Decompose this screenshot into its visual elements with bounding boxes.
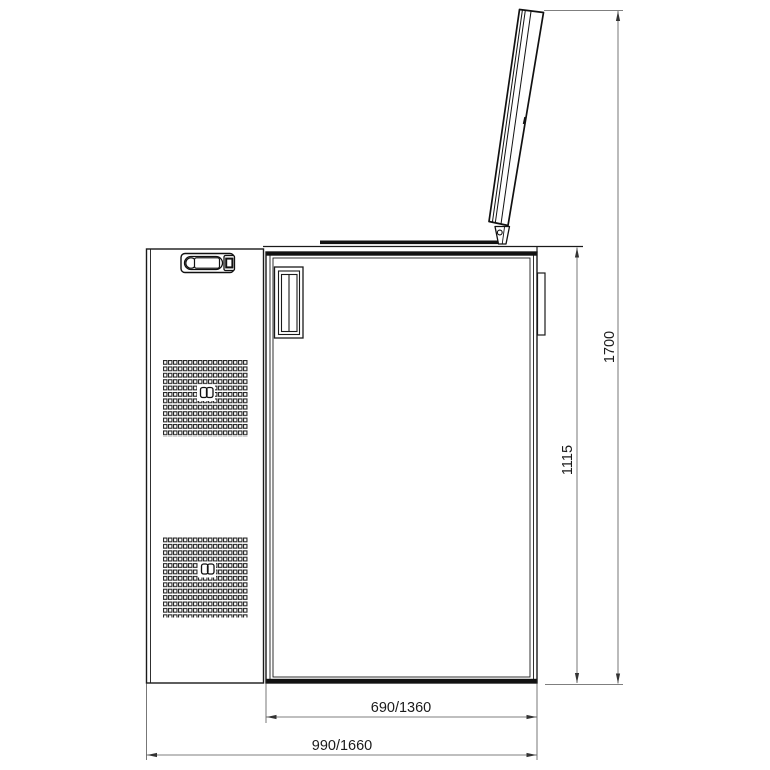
dim-label-overall-height: 1700 <box>602 331 618 363</box>
slider-knob <box>195 258 220 268</box>
door <box>266 252 545 683</box>
arrow-right-icon <box>527 715 537 719</box>
dim-label-door-width: 690/1360 <box>371 700 431 716</box>
arrow-down-icon <box>575 673 579 683</box>
drawing-page: 690/1360 990/1660 1115 1700 <box>0 0 770 770</box>
arrow-down-icon <box>616 674 620 684</box>
open-lid <box>489 10 544 226</box>
door-top-seal-band <box>267 252 537 255</box>
dim-label-overall-width: 990/1660 <box>312 738 372 754</box>
lid-opening-gasket <box>320 241 502 245</box>
door-hinge-plate <box>538 273 546 335</box>
arrow-left-icon <box>147 753 157 757</box>
left-panel <box>147 249 264 683</box>
left-panel-outline <box>147 249 264 683</box>
appliance-technical-drawing: 690/1360 990/1660 1115 1700 <box>0 0 770 770</box>
arrow-up-icon <box>616 11 620 21</box>
arrow-left-icon <box>267 715 277 719</box>
control-panel <box>181 254 235 273</box>
ventilation-grid-top <box>163 360 248 437</box>
cabinet-top <box>263 241 583 253</box>
door-bottom-seal-band <box>267 679 537 683</box>
door-handle <box>275 267 304 338</box>
door-outline <box>266 252 537 683</box>
arrow-right-icon <box>527 753 537 757</box>
ventilation-grid-bottom <box>163 538 248 618</box>
dim-label-body-height: 1115 <box>560 445 576 475</box>
arrow-up-icon <box>575 248 579 258</box>
switch-button <box>226 259 232 268</box>
